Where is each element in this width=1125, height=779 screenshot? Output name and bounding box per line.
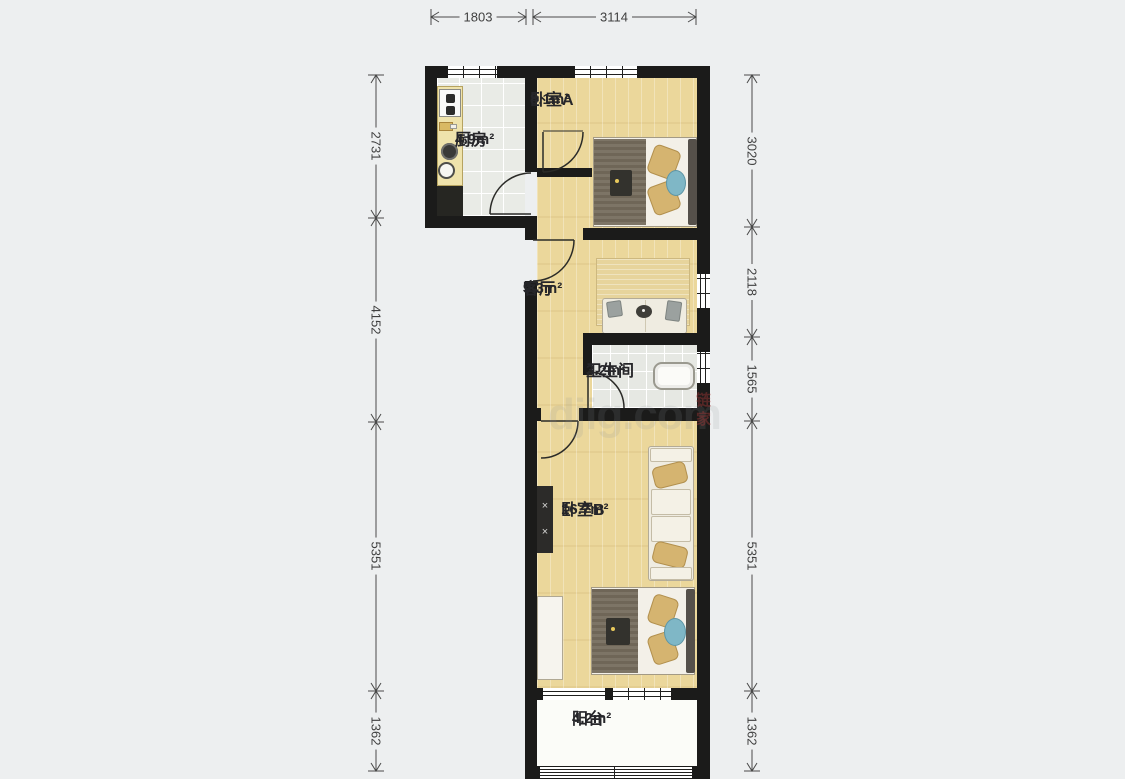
kitchen-area: 4.9m² — [455, 131, 494, 149]
sofa-cushion — [651, 516, 691, 542]
dim-right-4: 5351 — [745, 538, 760, 575]
dim-right-5: 1362 — [745, 713, 760, 750]
bedroom-a-area: 8.1m² — [530, 91, 569, 109]
stamp-watermark: 链家 — [692, 392, 713, 430]
wall-kitchen-right — [525, 66, 537, 172]
wall-kitchen-left — [425, 66, 437, 228]
dim-left-3: 5351 — [369, 538, 384, 575]
bathroom-area: 3.2m² — [586, 362, 625, 380]
bathtub-icon — [653, 362, 695, 390]
sofa-armrest — [650, 448, 692, 462]
dim-right-2: 2118 — [745, 264, 760, 300]
wall-living-bottom — [583, 333, 710, 345]
bathroom-window — [697, 352, 710, 383]
wall-living-top — [583, 228, 710, 240]
pot-icon — [438, 162, 455, 179]
dim-top-2: 3114 — [596, 10, 632, 25]
balcony-inner-window — [613, 688, 671, 700]
bedroom-a-tray — [610, 170, 632, 196]
kitchen-window — [448, 66, 497, 78]
bedroom-a-window — [575, 66, 637, 78]
wall-bedroom-b-top-left — [525, 408, 541, 421]
bedroom-b-tray — [606, 618, 630, 645]
wall-left-lower — [525, 281, 537, 778]
balcony-area: 4.2m² — [572, 710, 611, 728]
dim-left-4: 1362 — [369, 713, 384, 750]
wall-left-upper — [525, 228, 537, 240]
sofa-armrest — [650, 567, 692, 580]
sofa-pillow — [665, 300, 683, 322]
bedroom-b-cushion — [664, 618, 686, 646]
stove-icon — [439, 89, 461, 117]
dim-left-2: 4152 — [369, 302, 384, 339]
bedroom-b-headboard — [686, 589, 695, 673]
burner-icon — [446, 94, 455, 103]
dim-right-3: 1565 — [745, 361, 760, 398]
dim-left-1: 2731 — [369, 128, 384, 165]
kitchen-cabinet — [437, 186, 463, 216]
dim-right-1: 3020 — [745, 133, 760, 170]
wall-kitchen-bottom — [425, 216, 537, 228]
balcony-floor — [537, 700, 697, 766]
burner-icon — [446, 106, 455, 115]
sofa-cushion — [651, 489, 691, 515]
bedroom-b-desk — [537, 596, 563, 680]
living-window — [697, 274, 710, 308]
kitchen-item — [450, 124, 457, 129]
balcony-window — [540, 767, 692, 778]
balcony-slider-window — [543, 688, 605, 700]
floorplan-canvas: 厨房 4.9m² 卧室A 8.1m² 客厅 9.3m² 卫生间 3.2m² 卧室… — [0, 0, 1125, 779]
sofa-pillow — [606, 300, 623, 318]
bedroom-b-area: 16.7m² — [561, 501, 609, 519]
dim-top-1: 1803 — [460, 10, 497, 25]
bedroom-a-cushion — [666, 170, 686, 196]
wardrobe-icon — [537, 486, 553, 553]
bedroom-a-headboard — [688, 139, 697, 225]
living-area: 9.3m² — [523, 280, 562, 298]
wall-vestibule-stub — [537, 168, 592, 177]
coffee-table — [636, 305, 652, 318]
